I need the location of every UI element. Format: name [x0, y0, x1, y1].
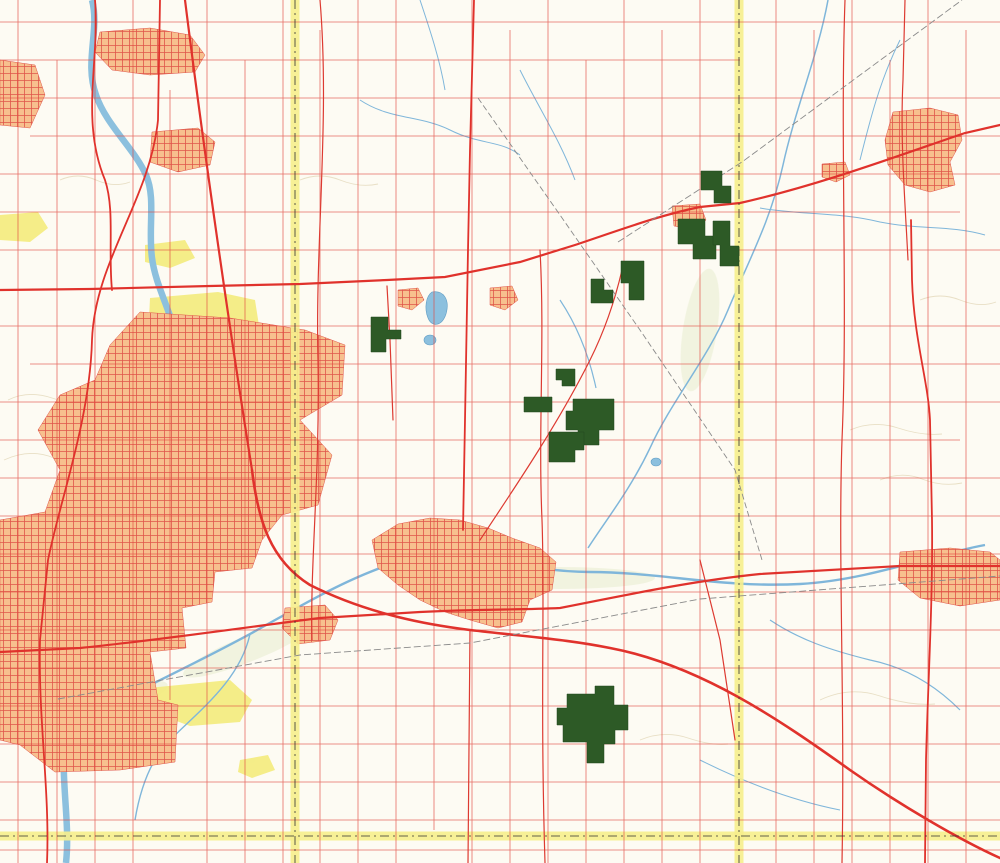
auction-location-map: [0, 0, 1000, 863]
labels-layer: [0, 0, 1000, 863]
